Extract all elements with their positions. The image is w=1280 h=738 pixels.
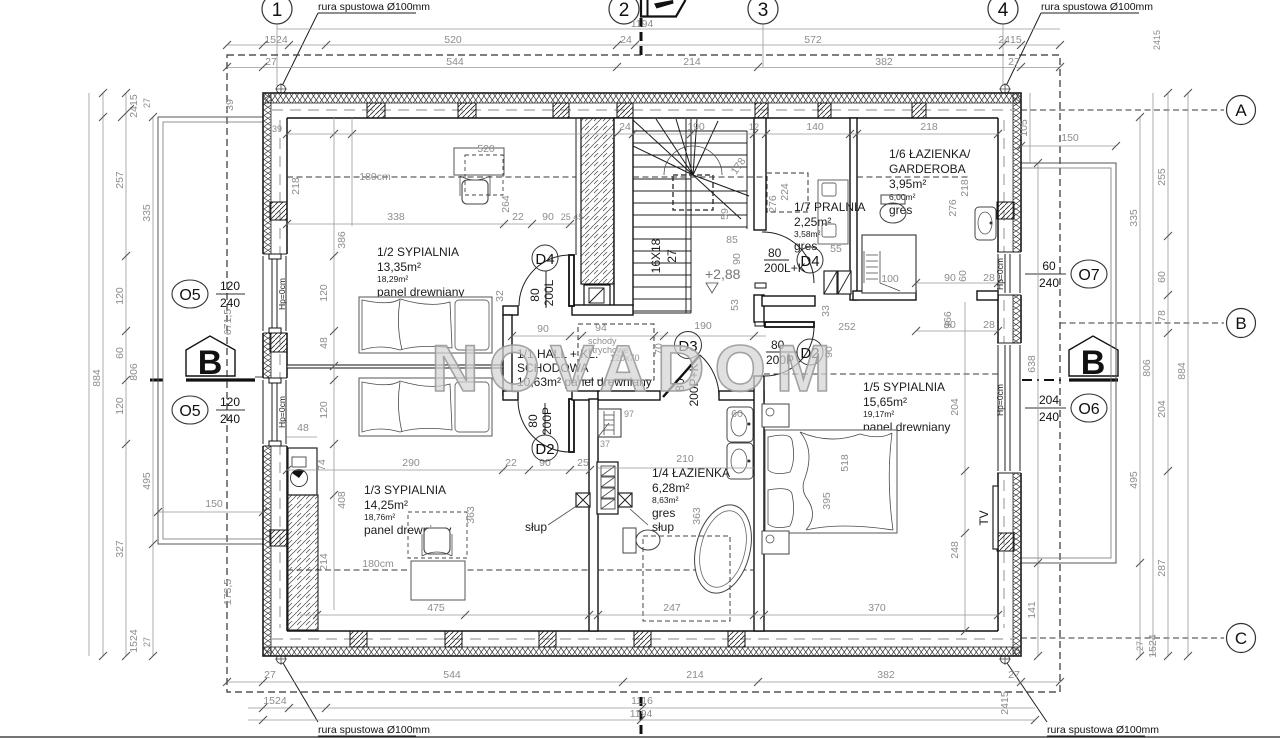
svg-text:204: 204 <box>1156 400 1168 418</box>
svg-text:276: 276 <box>767 195 779 213</box>
svg-text:O6: O6 <box>1078 401 1099 418</box>
svg-text:335: 335 <box>141 204 153 222</box>
svg-text:200L+K: 200L+K <box>764 261 806 275</box>
svg-text:204: 204 <box>949 398 961 416</box>
svg-text:55: 55 <box>830 243 842 255</box>
svg-text:240: 240 <box>220 412 240 426</box>
svg-text:rura spustowa Ø100mm: rura spustowa Ø100mm <box>318 724 430 736</box>
svg-text:327: 327 <box>114 540 126 558</box>
svg-text:1524: 1524 <box>128 629 140 653</box>
svg-text:370: 370 <box>868 602 886 614</box>
svg-text:90: 90 <box>944 319 956 331</box>
svg-text:NOVADOM: NOVADOM <box>431 331 841 405</box>
svg-text:80: 80 <box>526 414 540 428</box>
svg-text:22: 22 <box>505 457 517 469</box>
svg-text:27: 27 <box>1008 669 1020 681</box>
svg-text:240: 240 <box>1039 410 1059 424</box>
svg-text:2415: 2415 <box>998 34 1022 46</box>
svg-text:gres: gres <box>794 239 817 253</box>
svg-text:6,00m²: 6,00m² <box>889 192 916 202</box>
svg-text:59: 59 <box>719 208 731 220</box>
svg-text:GARDEROBA: GARDEROBA <box>889 162 966 176</box>
svg-text:+2,88: +2,88 <box>705 266 741 282</box>
svg-text:2415: 2415 <box>128 94 140 118</box>
svg-text:85: 85 <box>726 234 738 246</box>
svg-text:495: 495 <box>141 472 153 490</box>
svg-text:240: 240 <box>220 296 240 310</box>
svg-text:18,76m²: 18,76m² <box>364 512 395 522</box>
svg-text:806: 806 <box>1141 359 1153 377</box>
svg-text:224: 224 <box>779 183 791 201</box>
svg-text:382: 382 <box>875 56 893 68</box>
svg-text:120: 120 <box>318 284 330 302</box>
svg-text:rura spustowa Ø100mm: rura spustowa Ø100mm <box>318 1 430 13</box>
svg-text:48: 48 <box>297 422 309 434</box>
svg-text:1/5 SYPIALNIA: 1/5 SYPIALNIA <box>863 380 945 394</box>
svg-text:22: 22 <box>512 211 524 223</box>
svg-text:173,5: 173,5 <box>222 579 234 605</box>
svg-text:D4: D4 <box>535 251 554 268</box>
svg-text:264: 264 <box>500 195 512 213</box>
svg-text:180cm: 180cm <box>359 171 391 183</box>
svg-text:363: 363 <box>465 506 477 524</box>
svg-text:3,58m²: 3,58m² <box>794 229 821 239</box>
svg-text:27: 27 <box>1008 56 1020 68</box>
svg-text:28: 28 <box>983 272 995 284</box>
svg-text:1524: 1524 <box>263 695 287 707</box>
svg-text:1194: 1194 <box>631 18 654 30</box>
svg-text:1/2 SYPIALNIA: 1/2 SYPIALNIA <box>377 245 459 259</box>
svg-text:255: 255 <box>1156 168 1168 186</box>
svg-text:O5: O5 <box>179 287 200 304</box>
svg-text:363: 363 <box>691 507 703 525</box>
svg-text:2,25m²: 2,25m² <box>794 215 831 229</box>
svg-text:53: 53 <box>729 299 741 311</box>
svg-text:806: 806 <box>128 363 140 381</box>
svg-text:O5: O5 <box>179 403 200 420</box>
svg-text:1/3 SYPIALNIA: 1/3 SYPIALNIA <box>364 483 446 497</box>
svg-text:290: 290 <box>402 457 420 469</box>
svg-text:1: 1 <box>272 0 283 21</box>
svg-text:572: 572 <box>804 34 822 46</box>
svg-text:287: 287 <box>1156 559 1168 577</box>
svg-text:Hp=0cm: Hp=0cm <box>995 384 1005 416</box>
svg-text:1524: 1524 <box>1147 634 1159 658</box>
svg-text:14,25m²: 14,25m² <box>364 498 408 512</box>
svg-text:O7: O7 <box>1078 267 1099 284</box>
svg-text:276: 276 <box>947 199 959 217</box>
svg-text:100: 100 <box>881 273 899 285</box>
svg-text:338: 338 <box>387 211 405 223</box>
svg-text:200L: 200L <box>542 279 556 306</box>
svg-text:90: 90 <box>731 253 743 265</box>
svg-text:210: 210 <box>676 453 694 465</box>
svg-text:25: 25 <box>577 457 589 469</box>
svg-text:3,95m²: 3,95m² <box>889 177 926 191</box>
svg-text:90: 90 <box>944 272 956 284</box>
svg-text:60: 60 <box>1156 271 1168 283</box>
svg-text:1524: 1524 <box>264 34 288 46</box>
svg-text:475: 475 <box>427 602 445 614</box>
svg-text:19,17m²: 19,17m² <box>863 409 894 419</box>
svg-text:27: 27 <box>142 98 152 108</box>
svg-text:671,5: 671,5 <box>222 309 234 335</box>
svg-text:15,65m²: 15,65m² <box>863 395 907 409</box>
svg-text:27: 27 <box>1135 641 1145 651</box>
svg-text:rura spustowa Ø100mm: rura spustowa Ø100mm <box>1041 1 1153 13</box>
svg-text:638: 638 <box>1026 355 1038 373</box>
svg-text:214: 214 <box>683 56 701 68</box>
svg-text:B: B <box>1081 344 1106 382</box>
svg-text:16X18: 16X18 <box>649 238 663 273</box>
svg-text:544: 544 <box>446 56 464 68</box>
svg-text:28: 28 <box>983 319 995 331</box>
svg-text:120: 120 <box>318 401 330 419</box>
svg-text:Hp=0cm: Hp=0cm <box>277 396 287 428</box>
svg-text:382: 382 <box>877 669 895 681</box>
svg-text:520: 520 <box>444 34 462 46</box>
svg-text:1194: 1194 <box>630 708 653 720</box>
svg-text:18,29m²: 18,29m² <box>377 274 408 284</box>
svg-text:214: 214 <box>686 669 704 681</box>
svg-text:D2: D2 <box>535 441 554 458</box>
svg-text:gres: gres <box>652 506 675 520</box>
svg-text:78: 78 <box>1156 310 1168 322</box>
svg-text:27: 27 <box>142 637 152 647</box>
svg-text:TV: TV <box>977 510 991 525</box>
svg-text:395: 395 <box>821 492 833 510</box>
svg-text:48: 48 <box>318 337 330 349</box>
svg-text:240: 240 <box>1039 276 1059 290</box>
svg-text:32: 32 <box>494 290 506 302</box>
svg-text:218: 218 <box>290 177 302 195</box>
svg-text:884: 884 <box>1176 362 1188 380</box>
svg-text:2415: 2415 <box>1152 30 1162 50</box>
svg-text:27: 27 <box>665 249 679 263</box>
svg-text:150: 150 <box>1061 132 1079 144</box>
svg-text:B: B <box>198 344 223 382</box>
svg-text:200P: 200P <box>540 407 554 435</box>
svg-text:60: 60 <box>957 270 969 282</box>
svg-text:24: 24 <box>619 121 631 133</box>
svg-text:80: 80 <box>768 246 782 260</box>
svg-text:120: 120 <box>220 279 240 293</box>
svg-text:60: 60 <box>731 408 743 420</box>
svg-text:218: 218 <box>920 121 938 133</box>
svg-text:518: 518 <box>839 454 851 472</box>
svg-text:39: 39 <box>272 124 282 134</box>
svg-text:25 45: 25 45 <box>561 212 584 222</box>
svg-text:190: 190 <box>687 121 705 133</box>
svg-text:120: 120 <box>114 397 126 415</box>
svg-text:248: 248 <box>949 541 961 559</box>
svg-text:4: 4 <box>998 0 1009 21</box>
svg-text:13,35m²: 13,35m² <box>377 260 421 274</box>
svg-text:150: 150 <box>205 498 223 510</box>
svg-text:24: 24 <box>620 34 632 46</box>
svg-text:204: 204 <box>1039 393 1059 407</box>
svg-text:120: 120 <box>114 287 126 305</box>
svg-text:1116: 1116 <box>631 695 653 707</box>
svg-text:C: C <box>1235 629 1247 648</box>
svg-text:rura spustowa Ø100mm: rura spustowa Ø100mm <box>1047 724 1159 736</box>
svg-text:8,63m²: 8,63m² <box>652 495 679 505</box>
svg-text:80: 80 <box>528 288 542 302</box>
svg-text:90: 90 <box>539 457 551 469</box>
svg-text:27: 27 <box>265 56 277 68</box>
svg-text:60: 60 <box>1042 259 1056 273</box>
svg-text:140: 140 <box>806 121 824 133</box>
svg-text:408: 408 <box>336 491 348 509</box>
svg-text:214: 214 <box>318 553 330 571</box>
svg-text:257: 257 <box>114 171 126 189</box>
svg-text:105: 105 <box>1018 119 1030 137</box>
svg-text:97: 97 <box>624 409 634 419</box>
svg-text:Hp=0cm: Hp=0cm <box>277 278 287 310</box>
svg-text:180cm: 180cm <box>362 558 394 570</box>
svg-text:386: 386 <box>336 231 348 249</box>
svg-text:120: 120 <box>220 395 240 409</box>
svg-text:A: A <box>1235 101 1247 120</box>
svg-text:60: 60 <box>114 347 126 359</box>
svg-text:39: 39 <box>224 99 236 111</box>
svg-text:495: 495 <box>1128 471 1140 489</box>
svg-text:słup: słup <box>525 520 547 534</box>
svg-text:884: 884 <box>91 369 103 387</box>
svg-text:544: 544 <box>443 669 461 681</box>
svg-text:37: 37 <box>600 439 610 449</box>
svg-text:90: 90 <box>542 211 554 223</box>
svg-text:335: 335 <box>1128 209 1140 227</box>
svg-text:3: 3 <box>758 0 769 21</box>
svg-text:1/6 ŁAZIENKA/: 1/6 ŁAZIENKA/ <box>889 147 971 161</box>
svg-text:247: 247 <box>663 602 681 614</box>
svg-text:B: B <box>1235 314 1246 333</box>
svg-text:2: 2 <box>619 0 630 21</box>
svg-text:6,28m²: 6,28m² <box>652 481 689 495</box>
svg-text:141: 141 <box>1026 601 1038 619</box>
svg-text:218: 218 <box>959 179 971 197</box>
svg-text:74: 74 <box>316 459 328 471</box>
svg-text:33: 33 <box>820 305 832 317</box>
svg-text:520: 520 <box>477 143 495 155</box>
svg-text:2415: 2415 <box>999 691 1011 715</box>
